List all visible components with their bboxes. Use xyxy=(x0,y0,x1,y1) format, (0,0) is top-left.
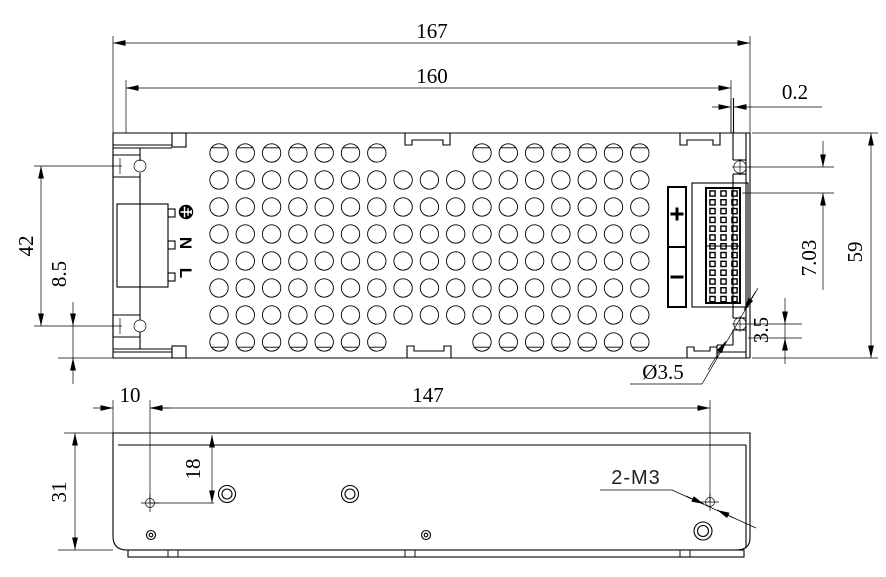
vent-hole xyxy=(578,144,596,162)
small-hole xyxy=(147,531,156,540)
vent-hole xyxy=(315,306,333,324)
vent-hole xyxy=(262,306,280,324)
vent-hole xyxy=(604,333,622,351)
vent-hole xyxy=(315,225,333,243)
vent-hole xyxy=(236,252,254,270)
screw-hole xyxy=(342,486,359,503)
vent-hole xyxy=(210,252,228,270)
output-pin xyxy=(710,297,715,302)
vent-hole xyxy=(631,333,649,351)
vent-hole xyxy=(341,171,359,189)
vent-hole xyxy=(447,252,465,270)
vent-hole xyxy=(525,333,543,351)
vent-hole xyxy=(447,225,465,243)
vent-hole xyxy=(394,225,412,243)
output-pin xyxy=(721,297,726,302)
vent-hole xyxy=(289,333,307,351)
vent-hole xyxy=(341,144,359,162)
vent-hole xyxy=(499,171,517,189)
vent-hole xyxy=(473,333,491,351)
vent-hole xyxy=(289,279,307,297)
vent-hole xyxy=(315,333,333,351)
vent-hole xyxy=(289,225,307,243)
vent-hole xyxy=(420,225,438,243)
vent-hole xyxy=(368,252,386,270)
vent-hole xyxy=(420,198,438,216)
vent-hole xyxy=(447,279,465,297)
vent-hole xyxy=(631,144,649,162)
side-view-outline xyxy=(113,433,750,557)
vent-hole xyxy=(210,333,228,351)
vent-hole xyxy=(368,144,386,162)
svg-text:167: 167 xyxy=(416,19,448,43)
vent-hole xyxy=(578,198,596,216)
vent-hole xyxy=(631,171,649,189)
output-pin xyxy=(721,226,726,231)
output-pin xyxy=(721,200,726,205)
vent-hole xyxy=(525,279,543,297)
dim-hole-to-bottom-85: 8.5 xyxy=(47,261,113,384)
vent-hole xyxy=(604,225,622,243)
vent-hole xyxy=(394,171,412,189)
vent-hole xyxy=(210,198,228,216)
vent-hole xyxy=(368,198,386,216)
vent-hole xyxy=(420,252,438,270)
vent-hole xyxy=(552,171,570,189)
vent-hole xyxy=(631,225,649,243)
vent-hole xyxy=(578,171,596,189)
output-pin xyxy=(710,191,715,196)
vent-hole xyxy=(368,225,386,243)
output-pin xyxy=(721,191,726,196)
output-pin xyxy=(721,261,726,266)
dim-hole-to-pin-703: 7.03 xyxy=(742,141,834,290)
vent-hole xyxy=(368,279,386,297)
vent-hole xyxy=(631,252,649,270)
vent-hole xyxy=(604,198,622,216)
svg-text:Ø3.5: Ø3.5 xyxy=(642,360,683,384)
plus-mark xyxy=(671,208,684,221)
vent-hole xyxy=(210,279,228,297)
output-pin xyxy=(710,226,715,231)
vent-hole xyxy=(236,279,254,297)
vent-hole xyxy=(525,225,543,243)
vent-hole xyxy=(552,198,570,216)
vent-hole xyxy=(473,252,491,270)
side-view: 10 147 18 31 2-M3 xyxy=(47,383,756,557)
vent-hole xyxy=(341,279,359,297)
vent-hole xyxy=(473,225,491,243)
output-pin xyxy=(710,217,715,222)
vent-hole xyxy=(420,171,438,189)
vent-hole xyxy=(578,225,596,243)
vent-hole xyxy=(578,306,596,324)
vent-hole xyxy=(499,225,517,243)
vent-hole xyxy=(394,306,412,324)
vent-hole xyxy=(473,198,491,216)
output-pin xyxy=(710,279,715,284)
output-pin xyxy=(721,253,726,258)
svg-text:18: 18 xyxy=(181,459,205,480)
vent-hole xyxy=(236,171,254,189)
svg-text:3.5: 3.5 xyxy=(749,317,773,343)
vent-hole xyxy=(604,252,622,270)
vent-hole xyxy=(236,198,254,216)
vent-hole xyxy=(262,252,280,270)
vent-hole xyxy=(236,225,254,243)
vent-hole xyxy=(578,333,596,351)
output-pin xyxy=(710,235,715,240)
vent-hole xyxy=(420,306,438,324)
vent-hole xyxy=(262,198,280,216)
screw-hole xyxy=(219,486,236,503)
vent-hole xyxy=(262,144,280,162)
small-hole xyxy=(422,531,431,540)
vent-hole xyxy=(525,306,543,324)
output-pin xyxy=(721,270,726,275)
vent-hole xyxy=(315,279,333,297)
vent-hole xyxy=(552,252,570,270)
output-pin xyxy=(721,235,726,240)
vent-hole xyxy=(420,279,438,297)
svg-text:160: 160 xyxy=(416,64,448,88)
vent-hole xyxy=(525,198,543,216)
vent-hole xyxy=(368,333,386,351)
vent-hole xyxy=(552,225,570,243)
vent-hole xyxy=(604,279,622,297)
vent-hole xyxy=(552,279,570,297)
line-label: L xyxy=(176,268,195,278)
output-pin xyxy=(721,217,726,222)
output-pin xyxy=(721,209,726,214)
vent-hole xyxy=(341,225,359,243)
output-pin xyxy=(710,261,715,266)
svg-text:10: 10 xyxy=(120,383,141,407)
svg-text:31: 31 xyxy=(47,482,71,503)
input-labels: N L xyxy=(176,205,195,278)
vent-hole xyxy=(499,252,517,270)
cad-drawing-canvas: N L xyxy=(0,0,886,577)
engineering-drawing: N L xyxy=(0,0,886,577)
vent-hole xyxy=(341,306,359,324)
vent-hole xyxy=(315,171,333,189)
svg-text:42: 42 xyxy=(14,236,38,257)
vent-hole xyxy=(394,279,412,297)
vent-hole xyxy=(447,171,465,189)
vent-hole xyxy=(262,171,280,189)
leader-thread-2m3: 2-M3 xyxy=(600,467,756,528)
vent-hole xyxy=(289,252,307,270)
vent-hole xyxy=(473,306,491,324)
vent-hole xyxy=(578,279,596,297)
svg-text:59: 59 xyxy=(843,242,867,263)
vent-hole xyxy=(236,333,254,351)
vent-hole xyxy=(289,198,307,216)
vent-hole xyxy=(262,225,280,243)
vent-hole xyxy=(604,144,622,162)
output-pin xyxy=(710,288,715,293)
vent-hole xyxy=(394,198,412,216)
vent-hole-grid xyxy=(210,144,649,351)
bottom-foot-strip xyxy=(128,550,744,557)
svg-text:147: 147 xyxy=(412,383,444,407)
svg-text:0.2: 0.2 xyxy=(782,80,808,104)
vent-hole xyxy=(473,279,491,297)
vent-hole xyxy=(631,279,649,297)
vent-hole xyxy=(236,306,254,324)
vent-hole xyxy=(525,252,543,270)
vent-hole xyxy=(289,306,307,324)
dim-cover-width-160: 160 xyxy=(126,64,731,133)
vent-hole xyxy=(315,144,333,162)
vent-hole xyxy=(631,198,649,216)
vent-hole xyxy=(447,306,465,324)
vent-hole xyxy=(210,306,228,324)
vent-hole xyxy=(525,144,543,162)
dim-hole-to-notch-35: 3.5 xyxy=(748,298,802,364)
vent-hole xyxy=(525,171,543,189)
output-pin xyxy=(710,209,715,214)
vent-hole xyxy=(552,144,570,162)
vent-hole xyxy=(368,171,386,189)
vent-hole xyxy=(210,144,228,162)
dim-mount-spacing-42: 42 xyxy=(14,166,122,326)
vent-hole xyxy=(289,144,307,162)
vent-hole xyxy=(499,279,517,297)
vent-hole xyxy=(262,279,280,297)
vent-hole xyxy=(552,306,570,324)
dim-left-offset-10: 10 xyxy=(93,383,170,503)
vent-hole xyxy=(552,333,570,351)
earth-ground-icon xyxy=(179,205,193,219)
vent-hole xyxy=(499,198,517,216)
vent-hole xyxy=(341,333,359,351)
vent-hole xyxy=(447,198,465,216)
vent-hole xyxy=(315,198,333,216)
vent-hole xyxy=(578,252,596,270)
output-pin xyxy=(710,200,715,205)
right-mounting-holes xyxy=(717,133,748,352)
top-view: N L xyxy=(14,19,878,384)
output-pin xyxy=(710,253,715,258)
svg-text:2-M3: 2-M3 xyxy=(611,467,661,489)
vent-hole xyxy=(473,171,491,189)
vent-hole xyxy=(289,171,307,189)
neutral-label: N xyxy=(176,237,195,249)
vent-hole xyxy=(604,306,622,324)
ac-terminal-block xyxy=(117,204,175,287)
screw-hole xyxy=(694,522,712,540)
output-pin xyxy=(710,270,715,275)
vent-hole xyxy=(315,252,333,270)
vent-hole xyxy=(499,333,517,351)
vent-hole xyxy=(499,306,517,324)
vent-hole xyxy=(473,144,491,162)
side-view-holes xyxy=(141,486,719,541)
dc-output-terminal xyxy=(668,183,748,307)
dim-height-31: 31 xyxy=(47,433,113,550)
vent-hole xyxy=(499,144,517,162)
vent-hole xyxy=(368,306,386,324)
vent-hole xyxy=(604,171,622,189)
vent-hole xyxy=(210,225,228,243)
vent-hole xyxy=(341,252,359,270)
vent-hole xyxy=(210,171,228,189)
output-pin xyxy=(721,279,726,284)
svg-text:8.5: 8.5 xyxy=(47,261,71,287)
svg-text:7.03: 7.03 xyxy=(797,240,821,277)
vent-hole xyxy=(394,252,412,270)
vent-hole xyxy=(631,306,649,324)
vent-hole xyxy=(236,144,254,162)
output-pin xyxy=(721,288,726,293)
vent-hole xyxy=(341,198,359,216)
vent-hole xyxy=(262,333,280,351)
